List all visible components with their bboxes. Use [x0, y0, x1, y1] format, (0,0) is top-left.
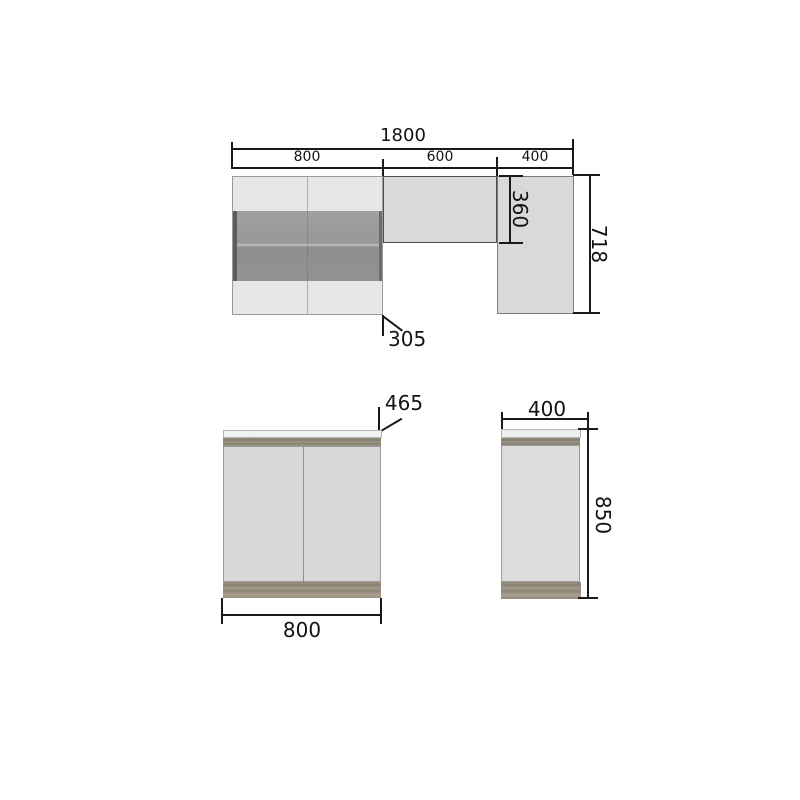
dim-segment-tick-800-600: [382, 159, 384, 177]
dim-305-label: 305: [388, 329, 426, 349]
dim-465-label: 465: [385, 393, 423, 413]
base-cabinet-countertop: [223, 430, 382, 438]
glass-panel-edge-left: [233, 211, 237, 281]
side-cabinet-panel: [501, 445, 580, 582]
base-cabinet-top-wood-band: [223, 438, 381, 446]
side-cabinet-plinth: [501, 582, 581, 599]
dim-800-label: 800: [283, 620, 321, 640]
dim-800-line: [222, 614, 382, 616]
dim-segment-800-label: 800: [294, 150, 321, 164]
dim-718-tick-bottom: [573, 312, 600, 314]
side-cabinet-countertop: [501, 429, 581, 438]
dim-360-tick-bottom: [499, 242, 523, 244]
dim-segment-400-label: 400: [522, 150, 549, 164]
glass-panel: [233, 211, 382, 281]
dim-360-tick-top: [499, 175, 523, 177]
dim-718-tick-top: [573, 174, 600, 176]
wall-cabinet-left: [232, 176, 383, 315]
dim-360-label: 360: [510, 190, 530, 228]
dim-718-label: 718: [589, 225, 609, 263]
dim-1800-label: 1800: [380, 127, 426, 145]
dim-segment-tick-600-400: [496, 157, 498, 178]
wall-cabinet-middle: [383, 176, 497, 243]
dim-segments-line: [232, 167, 574, 169]
dim-400-label: 400: [528, 399, 566, 419]
callout-465-leader: [379, 418, 402, 433]
side-cabinet: [501, 429, 581, 599]
glass-panel-divider: [307, 211, 308, 281]
base-cabinet-door-divider: [303, 447, 304, 581]
dim-400-tick-left: [501, 412, 503, 430]
dim-850-tick-bottom: [578, 597, 598, 599]
callout-465-vline: [378, 407, 380, 432]
dim-1800-tick-right: [572, 139, 574, 175]
dim-1800-tick-left: [231, 142, 233, 169]
furniture-dimension-drawing: 1800 800 600 400 360 718: [0, 0, 800, 800]
glass-panel-edge-right: [379, 211, 382, 281]
base-cabinet-doors: [223, 446, 381, 582]
dim-800-tick-right: [380, 598, 382, 624]
dim-850-tick-top: [578, 428, 598, 430]
side-cabinet-top-wood-band: [501, 438, 580, 445]
dim-850-line: [587, 412, 589, 599]
dim-850-label: 850: [593, 496, 613, 534]
dim-800-tick-left: [221, 598, 223, 624]
base-cabinet-plinth: [223, 582, 381, 598]
dim-segment-600-label: 600: [427, 150, 454, 164]
